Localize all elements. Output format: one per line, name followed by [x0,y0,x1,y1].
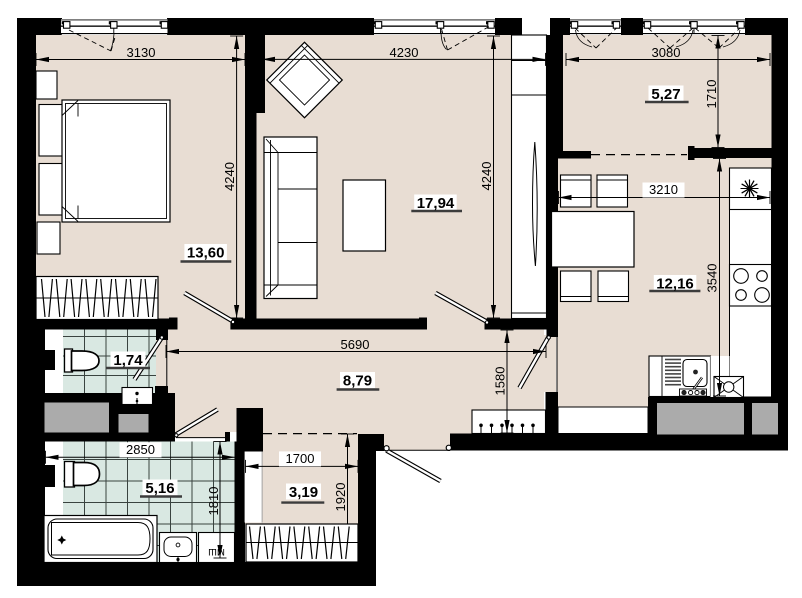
svg-text:3130: 3130 [127,45,156,60]
svg-text:4230: 4230 [390,45,419,60]
svg-text:3,19: 3,19 [289,484,318,501]
svg-text:12,16: 12,16 [656,275,694,292]
svg-text:3080: 3080 [652,45,681,60]
svg-text:5,27: 5,27 [651,86,680,103]
svg-text:8,79: 8,79 [343,372,372,389]
svg-text:МШ: МШ [208,546,225,557]
svg-text:2850: 2850 [126,442,155,457]
svg-text:13,60: 13,60 [187,244,225,261]
svg-text:4240: 4240 [479,162,494,191]
svg-text:1580: 1580 [493,367,508,396]
svg-text:4240: 4240 [222,162,237,191]
svg-text:5690: 5690 [341,337,370,352]
svg-text:1700: 1700 [286,451,315,466]
svg-text:3540: 3540 [705,264,720,293]
svg-text:1710: 1710 [704,80,719,109]
svg-text:17,94: 17,94 [417,195,455,212]
svg-text:3210: 3210 [649,182,678,197]
svg-text:5,16: 5,16 [145,480,174,497]
svg-text:1,74: 1,74 [113,352,143,369]
svg-text:1810: 1810 [206,487,221,516]
svg-text:1920: 1920 [333,483,348,512]
